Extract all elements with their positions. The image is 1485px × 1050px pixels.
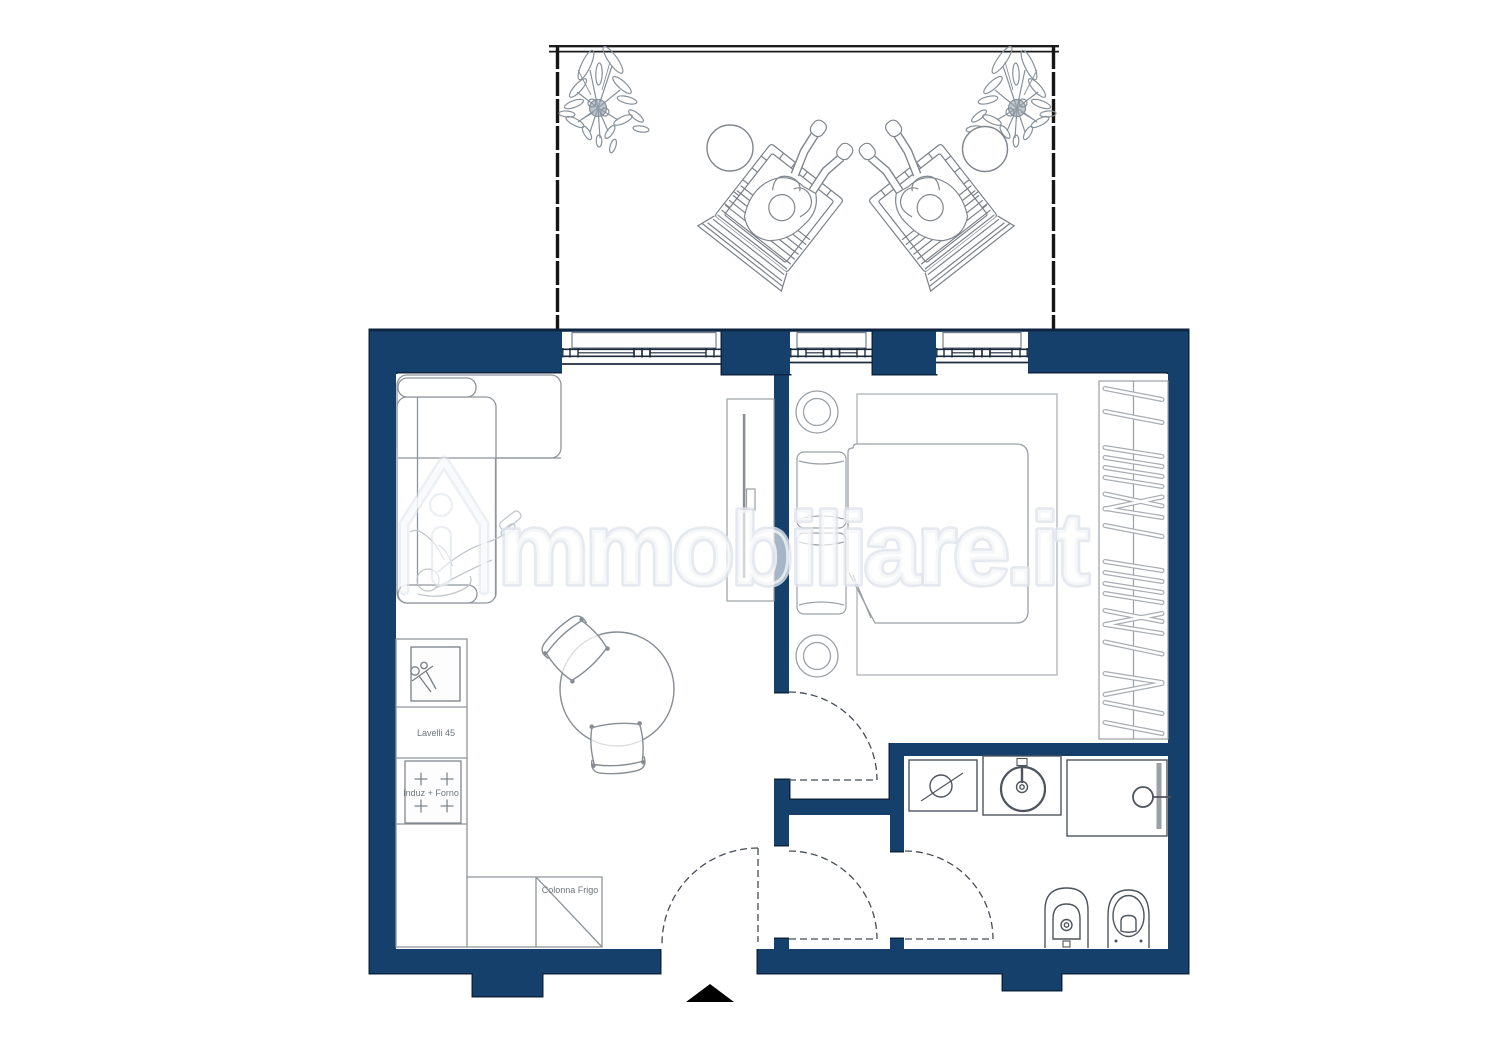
svg-text:mmobiliare.it: mmobiliare.it: [498, 492, 1089, 606]
svg-text:Induz + Forno: Induz + Forno: [403, 788, 459, 798]
svg-text:Lavelli 45: Lavelli 45: [417, 728, 455, 738]
svg-text:Colonna Frigo: Colonna Frigo: [542, 885, 599, 895]
